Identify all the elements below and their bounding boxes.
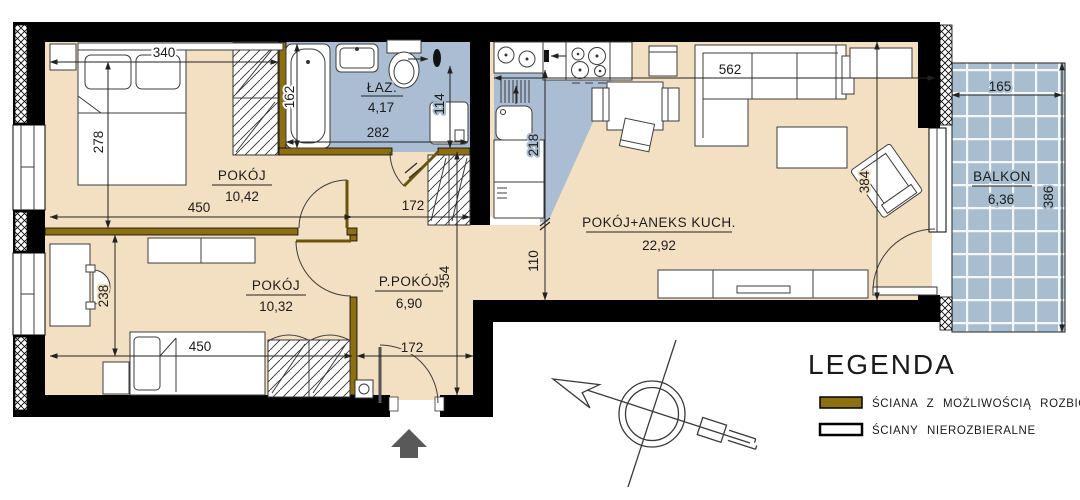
room-area: 10,32	[259, 299, 293, 314]
bathroom-sink	[336, 44, 378, 72]
wardrobe-hall	[428, 155, 470, 225]
side-cabinet	[850, 48, 912, 78]
entry-arrow-icon	[391, 429, 427, 458]
nightstand-2	[103, 362, 129, 394]
room-name: P.POKÓJ	[379, 274, 439, 289]
dim-450-top: 450	[188, 200, 211, 215]
room-area: 10,42	[225, 189, 259, 204]
legend-item-label: ŚCIANY NIEROZBIERALNE	[872, 424, 1036, 437]
north-arrow-icon	[548, 340, 760, 487]
dim-278: 278	[91, 131, 106, 154]
dim-172-bottom: 172	[401, 340, 424, 355]
floor-plan-drawing: 340 278 450 172 450 172 238 162 282 114 …	[0, 0, 1080, 500]
room-area: 6,36	[988, 192, 1014, 207]
kitchen-top-unit	[494, 42, 544, 73]
shelf-strip	[78, 43, 283, 50]
dim-450-bottom: 450	[189, 339, 212, 354]
double-bed	[78, 50, 186, 185]
counter-right-of-stove	[610, 42, 632, 80]
dim-172-top: 172	[402, 198, 425, 213]
legend-item-demolishable: ŚCIANA Z MOŻLIWOŚCIĄ ROZBIÓRKI	[820, 397, 1080, 410]
window-left-1	[13, 125, 45, 210]
dresser	[148, 238, 255, 263]
dim-162: 162	[282, 86, 297, 109]
legend-item-label: ŚCIANA Z MOŻLIWOŚCIĄ ROZBIÓRKI	[872, 397, 1080, 410]
dining-chair-left	[592, 88, 609, 121]
wall-bottom-right	[473, 300, 940, 322]
dim-354: 354	[437, 265, 452, 288]
room-area: 6,90	[396, 296, 422, 311]
desk	[50, 244, 90, 326]
room-area: 22,92	[642, 238, 676, 253]
room-name: ŁAZ.	[367, 80, 398, 95]
legend-item-non-demolishable: ŚCIANY NIEROZBIERALNE	[820, 424, 1036, 437]
demolishable-wall-swatch	[820, 397, 862, 408]
legend-title: LEGENDA	[808, 349, 956, 380]
dim-110: 110	[526, 250, 541, 272]
tv	[737, 286, 790, 293]
dining-chair-top	[649, 46, 677, 76]
wall-right-bottom	[918, 295, 940, 322]
dim-218: 218	[526, 134, 541, 157]
dim-386: 386	[1041, 186, 1056, 209]
wardrobe-bedroom2	[268, 335, 350, 397]
dim-165: 165	[989, 79, 1012, 94]
dim-340: 340	[153, 45, 176, 60]
stove	[566, 42, 610, 83]
wall-bottom-left-a	[13, 395, 390, 417]
room-name: POKÓJ	[252, 278, 300, 293]
room-name: POKÓJ+ANEKS KUCH.	[582, 215, 736, 230]
dim-114: 114	[432, 93, 447, 115]
dining-chair-bottom	[619, 118, 654, 152]
dim-282: 282	[367, 125, 390, 140]
non-demolishable-wall-swatch	[820, 424, 862, 435]
dim-238: 238	[96, 285, 111, 308]
tv-cabinet	[658, 270, 868, 298]
wall-kitchen-divider	[470, 42, 490, 225]
room-area: 4,17	[368, 100, 394, 115]
room-name: POKÓJ	[218, 168, 266, 183]
nightstand	[50, 44, 76, 70]
window-left-2	[13, 253, 45, 335]
dim-384: 384	[857, 170, 872, 193]
floor-plan-canvas: 340 278 450 172 450 172 238 162 282 114 …	[0, 0, 1080, 500]
dim-562: 562	[719, 62, 742, 77]
wall-right-top	[918, 22, 940, 128]
dining-chair-right	[662, 88, 679, 121]
coffee-table	[777, 127, 847, 168]
room-name: BALKON	[973, 169, 1031, 184]
wall-top	[30, 22, 938, 42]
legend: LEGENDA ŚCIANA Z MOŻLIWOŚCIĄ ROZBIÓRKI Ś…	[808, 349, 1080, 437]
wardrobe-bedroom1	[233, 42, 278, 155]
balcony-window	[929, 128, 946, 232]
